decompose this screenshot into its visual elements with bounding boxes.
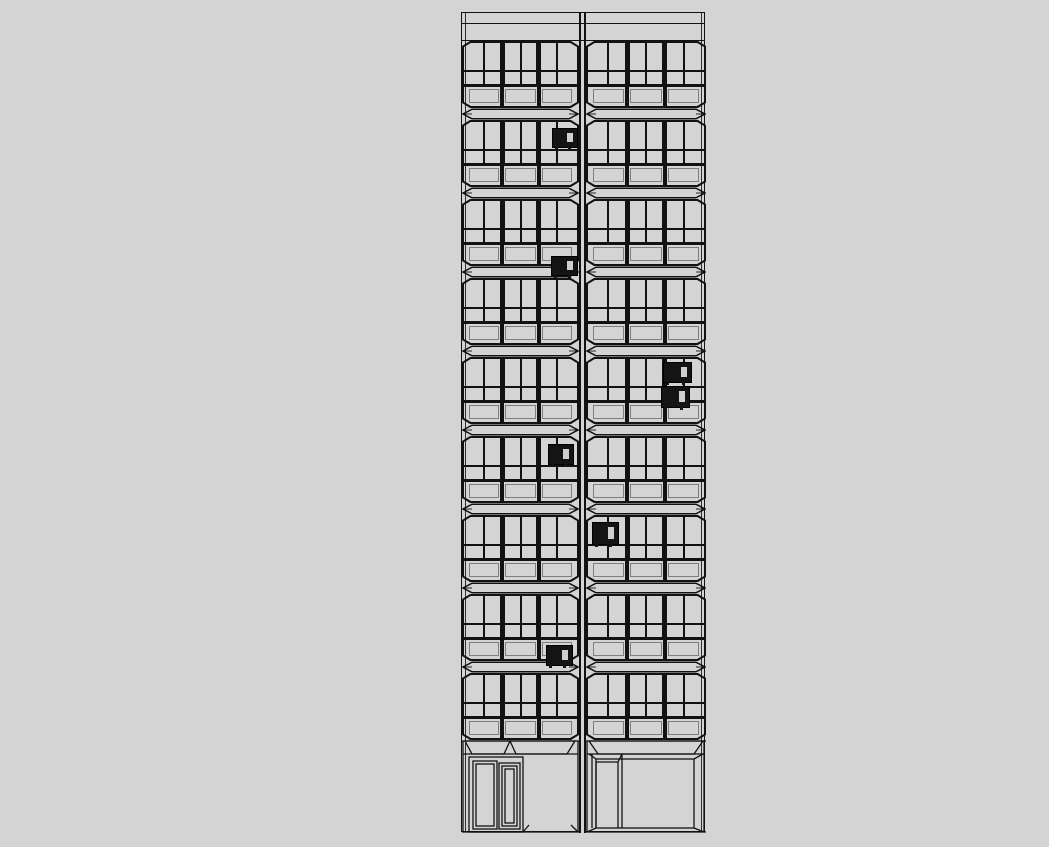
central-mullion <box>579 436 586 503</box>
building-elevation <box>461 12 705 832</box>
window-pane <box>630 675 645 702</box>
transom-light <box>647 72 659 84</box>
central-mullion <box>579 108 586 120</box>
transom-light <box>595 704 607 716</box>
window-pane <box>485 359 500 386</box>
window-pane <box>541 43 556 70</box>
window-pane <box>667 517 682 544</box>
slab-right <box>586 345 706 357</box>
floor-2 <box>462 120 704 187</box>
floor-slab-edge <box>462 503 579 515</box>
floor-8-right-bay <box>586 594 706 661</box>
spandrel-panel <box>668 168 699 182</box>
transom-light <box>544 230 556 242</box>
window-pane <box>667 438 682 465</box>
window-pane <box>522 517 537 544</box>
window-pane <box>468 280 483 307</box>
transom-group <box>468 230 500 242</box>
transom-light <box>544 388 556 400</box>
slab-band-8 <box>462 661 704 673</box>
transom-light <box>522 230 534 242</box>
glazing-group <box>667 596 700 623</box>
window-pane <box>647 43 662 70</box>
glazing-group <box>592 201 625 228</box>
window-pane <box>630 201 645 228</box>
glazing-group <box>541 280 573 307</box>
transom-row <box>464 307 577 324</box>
spandrel-mullion <box>537 403 541 422</box>
transom-group <box>541 309 573 321</box>
window-pane <box>592 596 607 623</box>
central-mullion <box>579 357 586 424</box>
spandrel-row <box>588 87 704 106</box>
transom-row <box>464 70 577 87</box>
glazing-group <box>505 517 537 544</box>
floor-6 <box>462 436 704 503</box>
spandrel-panel <box>469 563 499 577</box>
ac-vent-slot <box>678 390 686 403</box>
spandrel-panel <box>505 247 535 261</box>
glazing-group <box>505 280 537 307</box>
glazing-group <box>468 280 500 307</box>
spandrel-mullion <box>537 561 541 580</box>
ac-vent-slot <box>566 260 574 271</box>
window-pane <box>647 675 662 702</box>
transom-group <box>630 388 663 400</box>
transom-light <box>508 151 520 163</box>
transom-row <box>464 228 577 245</box>
window-pane <box>522 201 537 228</box>
window-pane <box>609 596 624 623</box>
spandrel-panel <box>469 405 499 419</box>
ac-floor3-left <box>551 256 578 276</box>
transom-light <box>544 309 556 321</box>
glazing-group <box>667 201 700 228</box>
transom-group <box>541 388 573 400</box>
transom-light <box>633 704 645 716</box>
spandrel-panel <box>630 247 661 261</box>
transom-row <box>464 386 577 403</box>
transom-group <box>630 704 663 716</box>
spandrel-panel <box>505 721 535 735</box>
transom-row <box>588 465 704 482</box>
window-pane <box>609 201 624 228</box>
floor-slab-edge <box>462 108 579 120</box>
window-pane <box>505 280 520 307</box>
spandrel-panel <box>469 642 499 656</box>
window-pane <box>592 280 607 307</box>
spandrel-panel <box>668 642 699 656</box>
floor-7 <box>462 515 704 582</box>
window-band <box>462 41 579 108</box>
transom-light <box>595 230 607 242</box>
spandrel-mullion <box>663 87 667 106</box>
window-pane <box>630 280 645 307</box>
window-pane <box>630 517 645 544</box>
spandrel-row <box>464 87 577 106</box>
transom-group <box>667 230 700 242</box>
parapet-right <box>586 24 706 40</box>
spandrel-panel <box>505 642 535 656</box>
slab-band-3 <box>462 266 704 278</box>
floor-9 <box>462 673 704 740</box>
glazing-group <box>541 201 573 228</box>
spandrel-panel <box>542 563 572 577</box>
transom-light <box>595 388 607 400</box>
ac-floor5-right-lower <box>661 386 690 408</box>
spandrel-panel <box>505 89 535 103</box>
drawing-canvas <box>0 0 1049 847</box>
window-pane <box>667 675 682 702</box>
central-mullion <box>579 515 586 582</box>
glazing-group <box>505 122 537 149</box>
spandrel-mullion <box>500 719 504 738</box>
window-band <box>586 41 706 108</box>
transom-row <box>464 465 577 482</box>
glazing-group <box>468 596 500 623</box>
window-pane <box>647 280 662 307</box>
transom-row <box>464 149 577 166</box>
window-pane <box>485 438 500 465</box>
window-pane <box>592 438 607 465</box>
transom-light <box>595 625 607 637</box>
slab-left <box>462 582 579 594</box>
transom-group <box>541 467 573 479</box>
transom-group <box>541 72 573 84</box>
window-pane <box>592 43 607 70</box>
window-pane <box>685 201 700 228</box>
spandrel-panel <box>593 247 624 261</box>
spandrel-row <box>464 482 577 501</box>
transom-light <box>485 151 497 163</box>
window-pane <box>630 438 645 465</box>
transom-light <box>522 546 534 558</box>
floor-1-left-bay <box>462 41 579 108</box>
slab-right <box>586 266 706 278</box>
window-pane <box>505 438 520 465</box>
central-mullion <box>579 199 586 266</box>
transom-light <box>685 151 697 163</box>
floor-slab-edge <box>586 345 706 357</box>
slab-right <box>586 582 706 594</box>
spandrel-mullion <box>500 640 504 659</box>
window-pane <box>667 201 682 228</box>
recessed-panel <box>596 759 694 828</box>
transom-light <box>544 72 556 84</box>
spandrel-mullion <box>663 640 667 659</box>
spandrel-mullion <box>625 640 629 659</box>
transom-light <box>595 546 607 558</box>
spandrel-row <box>588 640 704 659</box>
window-pane <box>558 675 573 702</box>
window-pane <box>541 359 556 386</box>
transom-group <box>592 546 625 558</box>
central-mullion <box>579 41 586 108</box>
slab-band-7 <box>462 582 704 594</box>
window-band <box>586 673 706 740</box>
central-mullion <box>579 740 586 833</box>
parapet-band-1 <box>462 13 704 24</box>
window-pane <box>630 43 645 70</box>
transom-group <box>667 704 700 716</box>
glazing-group <box>592 675 625 702</box>
transom-light <box>647 704 659 716</box>
floor-slab-edge <box>586 582 706 594</box>
window-band <box>586 199 706 266</box>
window-pane <box>468 438 483 465</box>
parapet-left <box>462 13 579 23</box>
glazing-group <box>468 675 500 702</box>
transom-light <box>485 704 497 716</box>
transom-light <box>544 467 556 479</box>
window-pane <box>558 596 573 623</box>
window-pane <box>558 359 573 386</box>
spandrel-panel <box>630 168 661 182</box>
spandrel-panel <box>668 484 699 498</box>
transom-group <box>667 72 700 84</box>
glazing-group <box>667 675 700 702</box>
transom-light <box>508 230 520 242</box>
transom-group <box>505 388 537 400</box>
upper-glazing-row <box>464 280 577 307</box>
slab-band-4 <box>462 345 704 357</box>
glazing-group <box>468 359 500 386</box>
window-pane <box>609 122 624 149</box>
transom-light <box>670 309 682 321</box>
transom-light <box>485 309 497 321</box>
glazing-group <box>630 201 663 228</box>
slab-right <box>586 187 706 199</box>
window-pane <box>541 675 556 702</box>
glazing-group <box>630 43 663 70</box>
spandrel-mullion <box>625 324 629 343</box>
spandrel-panel <box>505 168 535 182</box>
window-pane <box>609 438 624 465</box>
floor-6-right-bay <box>586 436 706 503</box>
transom-row <box>464 623 577 640</box>
floor-9-right-bay <box>586 673 706 740</box>
spandrel-panel <box>593 484 624 498</box>
window-pane <box>609 359 624 386</box>
window-pane <box>558 201 573 228</box>
glazing-group <box>505 359 537 386</box>
spandrel-panel <box>542 484 572 498</box>
glazing-group <box>667 517 700 544</box>
transom-light <box>647 546 659 558</box>
transom-group <box>592 309 625 321</box>
spandrel-panel <box>593 89 624 103</box>
transom-group <box>468 467 500 479</box>
floor-4-left-bay <box>462 278 579 345</box>
glazing-group <box>630 122 663 149</box>
window-pane <box>667 280 682 307</box>
window-pane <box>630 359 645 386</box>
slab-band-5 <box>462 424 704 436</box>
window-pane <box>592 122 607 149</box>
transom-light <box>609 309 621 321</box>
transom-light <box>544 151 556 163</box>
glazing-group <box>541 43 573 70</box>
transom-light <box>471 72 483 84</box>
window-pane <box>592 675 607 702</box>
glazing-group <box>505 201 537 228</box>
spandrel-panel <box>593 168 624 182</box>
transom-light <box>471 309 483 321</box>
glazing-group <box>468 201 500 228</box>
window-pane <box>505 43 520 70</box>
transom-light <box>558 230 570 242</box>
transom-light <box>485 467 497 479</box>
window-pane <box>541 201 556 228</box>
window-pane <box>647 122 662 149</box>
spandrel-panel <box>630 563 661 577</box>
upper-glazing-row <box>588 201 704 228</box>
ac-vent-slot <box>562 448 570 460</box>
transom-group <box>541 546 573 558</box>
spandrel-mullion <box>625 166 629 185</box>
window-pane <box>505 596 520 623</box>
spandrel-mullion <box>625 245 629 264</box>
transom-light <box>522 151 534 163</box>
glazing-group <box>592 122 625 149</box>
spandrel-mullion <box>625 561 629 580</box>
central-mullion <box>579 345 586 357</box>
central-mullion <box>579 503 586 515</box>
slab-left <box>462 503 579 515</box>
spandrel-mullion <box>625 403 629 422</box>
glazing-group <box>630 675 663 702</box>
transom-light <box>508 704 520 716</box>
transom-group <box>592 230 625 242</box>
spandrel-mullion <box>625 87 629 106</box>
spandrel-panel <box>469 484 499 498</box>
spandrel-panel <box>469 168 499 182</box>
ac-vent-slot <box>607 526 615 540</box>
transom-group <box>592 625 625 637</box>
transom-light <box>522 72 534 84</box>
glazing-group <box>630 359 663 386</box>
spandrel-row <box>464 166 577 185</box>
transom-light <box>670 467 682 479</box>
spandrel-mullion <box>537 245 541 264</box>
parapet-band-2 <box>462 24 704 41</box>
upper-glazing-row <box>464 517 577 544</box>
window-band <box>462 515 579 582</box>
window-pane <box>505 201 520 228</box>
floor-slab-edge <box>462 424 579 436</box>
central-mullion <box>579 24 586 40</box>
transom-group <box>667 467 700 479</box>
transom-light <box>508 388 520 400</box>
window-pane <box>685 122 700 149</box>
glazing-group <box>592 596 625 623</box>
spandrel-panel <box>593 326 624 340</box>
window-pane <box>522 675 537 702</box>
ground-left-bay-entrance <box>462 740 579 833</box>
window-pane <box>522 359 537 386</box>
window-pane <box>468 596 483 623</box>
window-pane <box>558 43 573 70</box>
transom-group <box>505 625 537 637</box>
spandrel-panel <box>505 405 535 419</box>
spandrel-row <box>464 561 577 580</box>
window-pane <box>667 43 682 70</box>
window-band <box>462 278 579 345</box>
entrance-elevation <box>462 740 579 833</box>
window-pane <box>541 517 556 544</box>
transom-light <box>685 467 697 479</box>
window-band <box>586 594 706 661</box>
window-pane <box>522 122 537 149</box>
transom-group <box>468 704 500 716</box>
ground-right-bay-storefront <box>586 740 706 833</box>
transom-group <box>592 467 625 479</box>
transom-light <box>558 625 570 637</box>
glazing-group <box>592 43 625 70</box>
window-pane <box>558 517 573 544</box>
transom-light <box>471 388 483 400</box>
transom-light <box>471 230 483 242</box>
transom-group <box>505 467 537 479</box>
floor-slab-edge <box>462 345 579 357</box>
ac-vent-slot <box>680 366 688 378</box>
slab-band-1 <box>462 108 704 120</box>
spandrel-mullion <box>500 87 504 106</box>
transom-group <box>667 546 700 558</box>
storefront-elevation <box>586 740 706 833</box>
upper-glazing-row <box>464 596 577 623</box>
transom-group <box>592 72 625 84</box>
slab-left <box>462 108 579 120</box>
glazing-group <box>468 43 500 70</box>
floor-slab-edge <box>586 503 706 515</box>
window-band <box>586 278 706 345</box>
window-pane <box>485 596 500 623</box>
glazing-group <box>630 517 663 544</box>
glazing-group <box>667 280 700 307</box>
spandrel-panel <box>593 721 624 735</box>
transom-group <box>505 546 537 558</box>
transom-group <box>630 151 663 163</box>
window-pane <box>647 438 662 465</box>
window-pane <box>541 596 556 623</box>
floor-4 <box>462 278 704 345</box>
glazing-group <box>592 280 625 307</box>
glazing-group <box>667 43 700 70</box>
transom-row <box>588 149 704 166</box>
slab-right <box>586 424 706 436</box>
transom-light <box>670 72 682 84</box>
spandrel-panel <box>630 405 661 419</box>
window-pane <box>685 675 700 702</box>
floor-slab-edge <box>462 187 579 199</box>
spandrel-mullion <box>537 482 541 501</box>
transom-light <box>485 72 497 84</box>
spandrel-row <box>464 403 577 422</box>
transom-light <box>522 467 534 479</box>
window-pane <box>468 675 483 702</box>
transom-row <box>588 228 704 245</box>
transom-group <box>541 230 573 242</box>
transom-light <box>595 151 607 163</box>
spandrel-panel <box>630 484 661 498</box>
window-pane <box>505 675 520 702</box>
floor-slab-edge <box>586 661 706 673</box>
glazing-group <box>592 438 625 465</box>
window-pane <box>685 596 700 623</box>
upper-glazing-row <box>464 675 577 702</box>
window-pane <box>609 43 624 70</box>
